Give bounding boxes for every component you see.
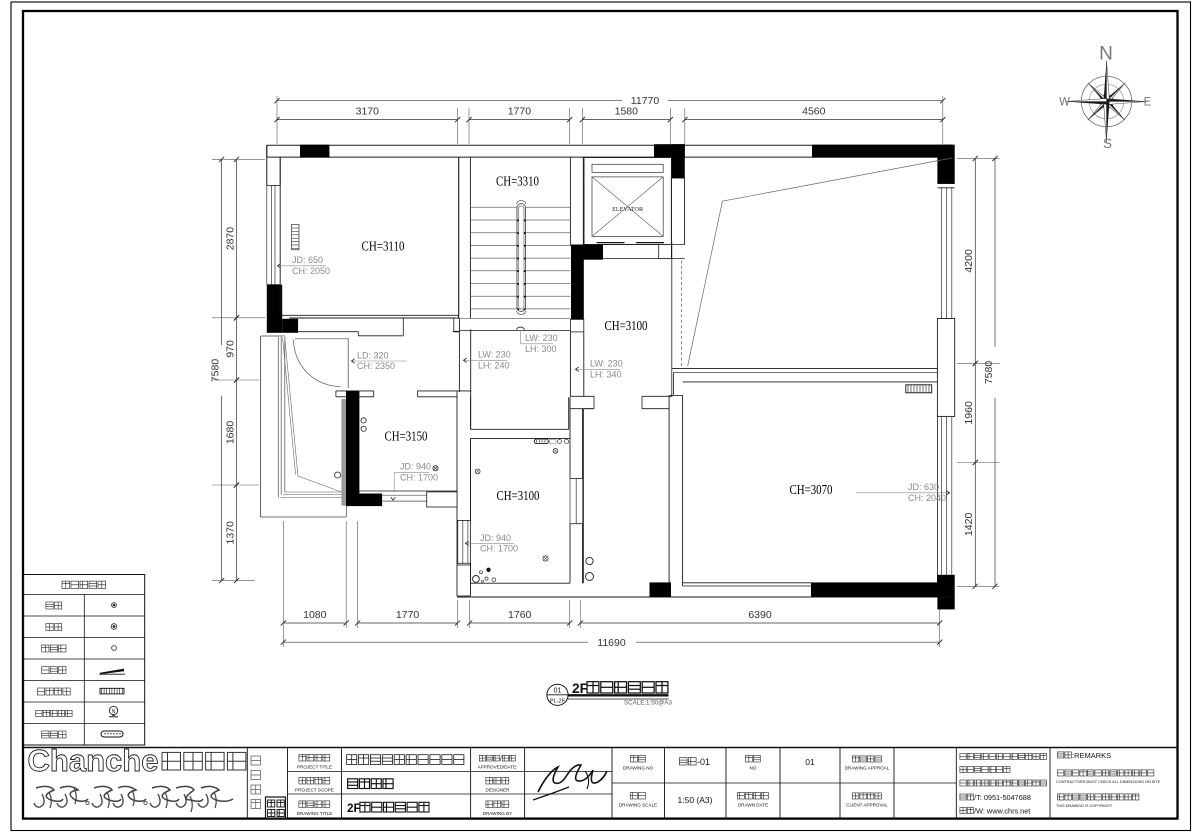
svg-text:1580: 1580 bbox=[615, 106, 639, 118]
svg-text:1770: 1770 bbox=[508, 106, 532, 118]
svg-text:CH: 1700: CH: 1700 bbox=[480, 544, 518, 554]
svg-text:2F: 2F bbox=[347, 801, 361, 815]
svg-text:JD: 940: JD: 940 bbox=[480, 533, 511, 543]
svg-text:DRAWN DATE: DRAWN DATE bbox=[738, 803, 768, 808]
svg-text::REMARKS: :REMARKS bbox=[1072, 751, 1111, 760]
svg-text:PL-2F: PL-2F bbox=[550, 699, 566, 705]
svg-text:CLIENT APPROVAL: CLIENT APPROVAL bbox=[846, 803, 888, 808]
svg-text:1080: 1080 bbox=[303, 609, 327, 621]
svg-text:PROJECT SCOPE: PROJECT SCOPE bbox=[295, 788, 334, 793]
svg-text:-01: -01 bbox=[697, 757, 710, 767]
svg-text:E: E bbox=[1144, 97, 1152, 109]
svg-text:CH=3100: CH=3100 bbox=[605, 318, 648, 333]
svg-text:CH: 2040: CH: 2040 bbox=[908, 493, 946, 503]
svg-text:2F: 2F bbox=[572, 681, 588, 696]
svg-text:3170: 3170 bbox=[356, 106, 380, 118]
svg-text:JD: 940: JD: 940 bbox=[400, 462, 431, 472]
svg-text:DRAWING BY: DRAWING BY bbox=[483, 811, 512, 816]
svg-text:1680: 1680 bbox=[224, 421, 236, 445]
svg-text:LH: 240: LH: 240 bbox=[478, 361, 510, 371]
svg-text:CH=3110: CH=3110 bbox=[362, 239, 405, 254]
svg-text:/: / bbox=[500, 756, 502, 763]
svg-text:JD: 650: JD: 650 bbox=[292, 255, 323, 265]
svg-text:4200: 4200 bbox=[963, 249, 975, 273]
svg-text:/W: www.chrs.net: /W: www.chrs.net bbox=[974, 807, 1030, 816]
svg-text:1760: 1760 bbox=[508, 609, 532, 621]
svg-text:Chanche: Chanche bbox=[28, 743, 159, 778]
svg-text:CH=3070: CH=3070 bbox=[790, 482, 833, 497]
svg-text:W: W bbox=[1059, 97, 1070, 109]
svg-text:DESIGNER: DESIGNER bbox=[486, 788, 511, 793]
svg-text:970: 970 bbox=[224, 340, 236, 358]
svg-text:JD: 630: JD: 630 bbox=[908, 482, 939, 492]
svg-text:LW: 230: LW: 230 bbox=[590, 359, 623, 369]
svg-text:LW: 230: LW: 230 bbox=[478, 350, 511, 360]
svg-text:CH: 2050: CH: 2050 bbox=[292, 266, 330, 276]
svg-text:01: 01 bbox=[554, 688, 562, 695]
svg-text:2870: 2870 bbox=[224, 227, 236, 251]
svg-text:1770: 1770 bbox=[396, 609, 420, 621]
svg-text:ELEVATOR: ELEVATOR bbox=[612, 206, 644, 213]
svg-text:DRAWING SCALE: DRAWING SCALE bbox=[619, 803, 657, 808]
svg-text:4560: 4560 bbox=[802, 106, 826, 118]
svg-text:DRAWING NO: DRAWING NO bbox=[623, 766, 654, 771]
svg-text:LH: 340: LH: 340 bbox=[590, 370, 622, 380]
svg-text:PROJECT TITLE: PROJECT TITLE bbox=[297, 765, 332, 770]
svg-text:CONTRACTORS MUST CHECK ALL DIM: CONTRACTORS MUST CHECK ALL DIMENSIONS ON… bbox=[1056, 780, 1161, 784]
svg-text:CH: 2350: CH: 2350 bbox=[357, 361, 395, 371]
svg-text:1370: 1370 bbox=[224, 521, 236, 545]
svg-text:11690: 11690 bbox=[597, 637, 626, 649]
svg-text:LW: 230: LW: 230 bbox=[525, 333, 558, 343]
svg-text:01: 01 bbox=[805, 757, 815, 767]
svg-text:NO: NO bbox=[750, 766, 757, 771]
svg-text:1:50 (A3): 1:50 (A3) bbox=[678, 795, 713, 805]
svg-text:SCALE:1:50@A3: SCALE:1:50@A3 bbox=[624, 700, 672, 707]
svg-text:7580: 7580 bbox=[983, 361, 995, 385]
svg-text:N: N bbox=[1099, 44, 1113, 65]
svg-text:1960: 1960 bbox=[963, 401, 975, 425]
svg-text:S: S bbox=[1103, 136, 1112, 151]
svg-text:THIS DRAWING IS COPYRIGHT: THIS DRAWING IS COPYRIGHT bbox=[1056, 804, 1113, 808]
svg-text:CH=3150: CH=3150 bbox=[385, 429, 428, 444]
svg-text:LD: 320: LD: 320 bbox=[357, 350, 389, 360]
svg-text:/T: 0951-5047688: /T: 0951-5047688 bbox=[974, 793, 1031, 802]
svg-text:DRAWING APPROAL: DRAWING APPROAL bbox=[845, 766, 890, 771]
svg-text:7580: 7580 bbox=[209, 359, 221, 383]
svg-text:LH: 300: LH: 300 bbox=[525, 344, 557, 354]
svg-text:DRAWING TITLE: DRAWING TITLE bbox=[297, 811, 333, 816]
svg-text:1420: 1420 bbox=[963, 513, 975, 537]
svg-text:N: N bbox=[112, 709, 116, 715]
svg-text:6390: 6390 bbox=[748, 609, 772, 621]
svg-text:CH: 1700: CH: 1700 bbox=[400, 473, 438, 483]
svg-text:APPROVED/DATE:: APPROVED/DATE: bbox=[478, 765, 518, 770]
svg-text:CH=3310: CH=3310 bbox=[496, 174, 539, 189]
svg-text:CH=3100: CH=3100 bbox=[497, 488, 540, 503]
